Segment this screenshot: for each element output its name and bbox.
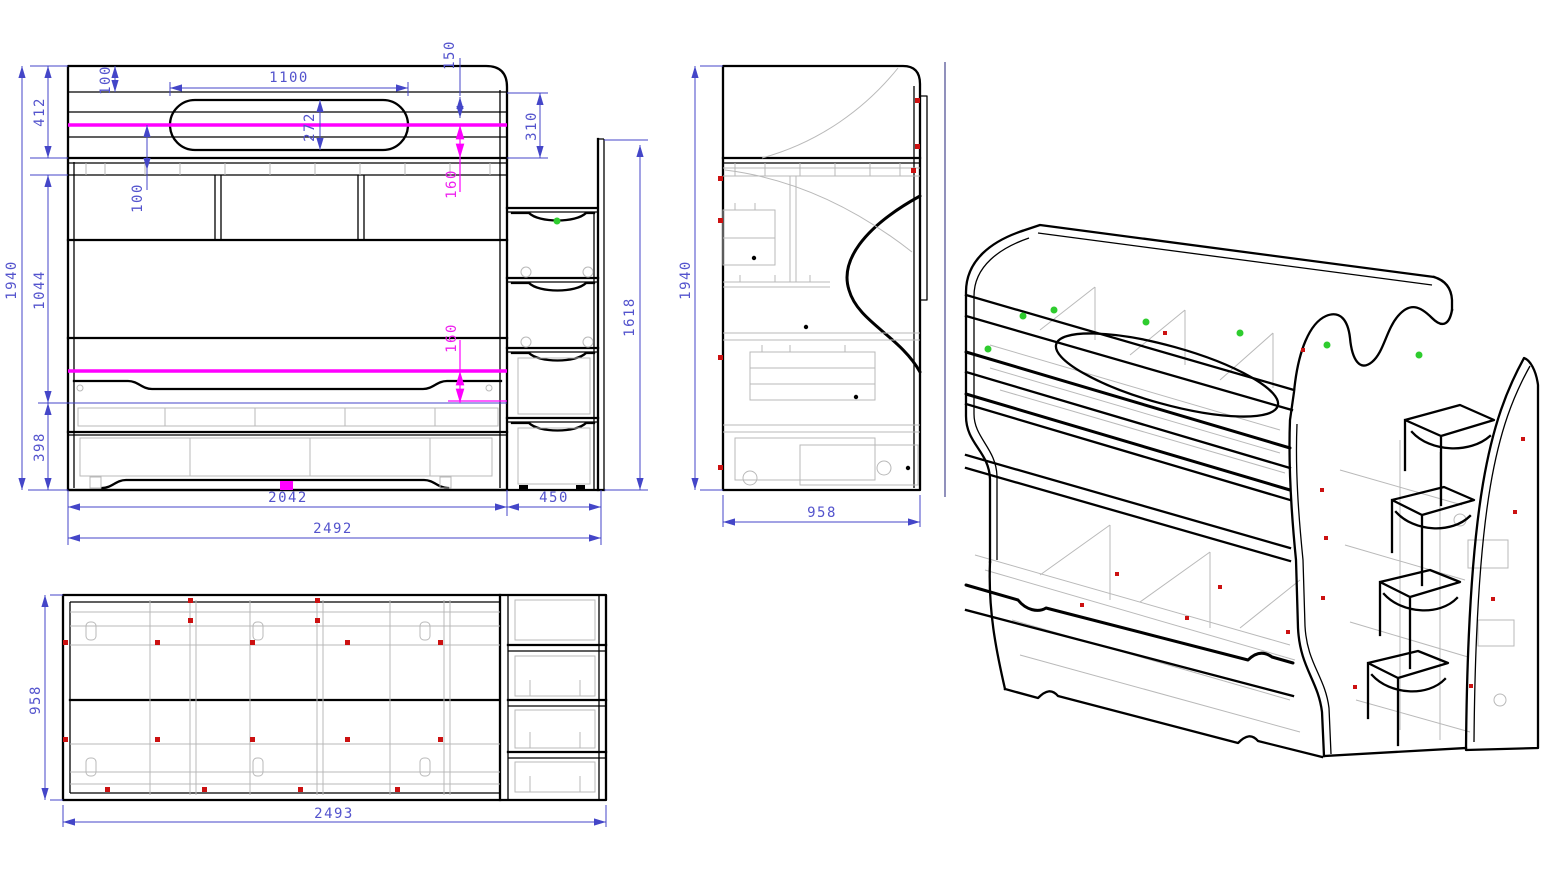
dim-ladder-height: 1618 bbox=[622, 297, 638, 337]
side-hidden-details bbox=[723, 68, 920, 485]
plan-hidden-details bbox=[70, 600, 595, 795]
side-dimensions: 1940 958 bbox=[678, 66, 920, 527]
front-elevation-view: 1940 412 1044 398 100 100 1100 272 150 3… bbox=[4, 40, 648, 545]
dim-cutout-height: 272 bbox=[302, 112, 318, 142]
iso-staircase bbox=[1368, 358, 1538, 750]
plan-view: 958 2493 bbox=[28, 595, 606, 827]
dim-side-height: 1940 bbox=[678, 260, 694, 300]
magenta-marker bbox=[280, 481, 293, 490]
dim-rail-spacing: 100 bbox=[130, 183, 146, 213]
front-dimensions: 1940 412 1044 398 100 100 1100 272 150 3… bbox=[4, 40, 648, 545]
dim-overall-width: 2492 bbox=[313, 521, 353, 537]
dim-ladder-width: 450 bbox=[539, 490, 569, 506]
green-fastener-dot bbox=[554, 218, 561, 225]
side-fastener-dots bbox=[718, 98, 920, 470]
isometric-view bbox=[966, 225, 1538, 757]
front-magenta-dimensions: 160 160 bbox=[444, 125, 507, 403]
dim-side-depth: 958 bbox=[807, 505, 837, 521]
dim-bed-width: 2042 bbox=[268, 490, 308, 506]
dim-middle-section: 1044 bbox=[32, 270, 48, 310]
dim-lower-gap: 160 bbox=[444, 323, 460, 353]
dim-plan-width: 2493 bbox=[314, 806, 354, 822]
side-elevation-view: 1940 958 bbox=[678, 62, 945, 527]
front-ladder-unit bbox=[507, 139, 604, 490]
dim-cutout-width: 1100 bbox=[269, 70, 309, 86]
dim-upper-section: 412 bbox=[32, 97, 48, 127]
iso-hidden-structure bbox=[975, 287, 1514, 740]
dim-rail-band: 310 bbox=[524, 111, 540, 141]
cad-drawing-canvas: 1940 412 1044 398 100 100 1100 272 150 3… bbox=[0, 0, 1545, 872]
dim-lower-section: 398 bbox=[32, 432, 48, 462]
dim-top-corner-offset: 150 bbox=[442, 40, 458, 70]
dim-total-height: 1940 bbox=[4, 260, 20, 300]
dim-plan-depth: 958 bbox=[28, 685, 44, 715]
side-outline bbox=[723, 66, 927, 490]
technical-drawing-svg: 1940 412 1044 398 100 100 1100 272 150 3… bbox=[0, 0, 1545, 872]
dim-upper-gap: 160 bbox=[444, 169, 460, 199]
iso-bed-outline bbox=[966, 225, 1466, 757]
dim-top-rail-inset: 100 bbox=[98, 65, 114, 95]
